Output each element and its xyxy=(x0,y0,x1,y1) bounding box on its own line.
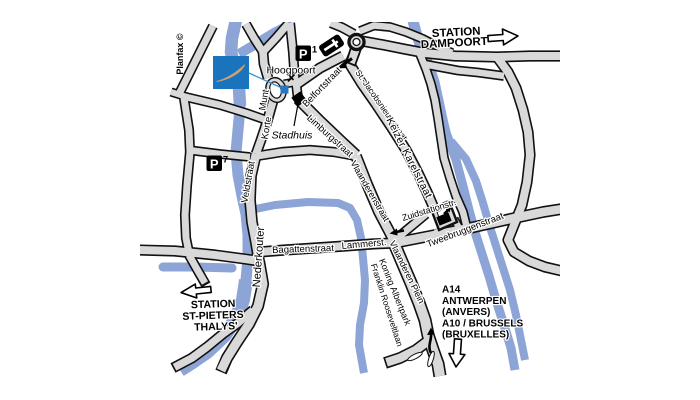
svg-text:Hoogpoort: Hoogpoort xyxy=(266,65,315,77)
svg-text:Stadhuis: Stadhuis xyxy=(272,130,314,142)
svg-text:1: 1 xyxy=(312,45,318,56)
svg-text:(BRUXELLES): (BRUXELLES) xyxy=(442,330,509,341)
svg-text:A10 / BRUSSELS: A10 / BRUSSELS xyxy=(442,318,523,329)
svg-text:Planfax ©: Planfax © xyxy=(175,33,185,75)
svg-text:P: P xyxy=(299,47,308,62)
svg-text:P: P xyxy=(210,157,219,172)
svg-text:Bagattenstraat: Bagattenstraat xyxy=(272,243,334,256)
svg-text:ANTWERPEN: ANTWERPEN xyxy=(442,296,506,307)
svg-text:THALYS': THALYS' xyxy=(194,320,238,334)
svg-text:(ANVERS): (ANVERS) xyxy=(442,307,490,318)
svg-text:A14: A14 xyxy=(442,285,461,296)
svg-text:7: 7 xyxy=(223,155,228,166)
